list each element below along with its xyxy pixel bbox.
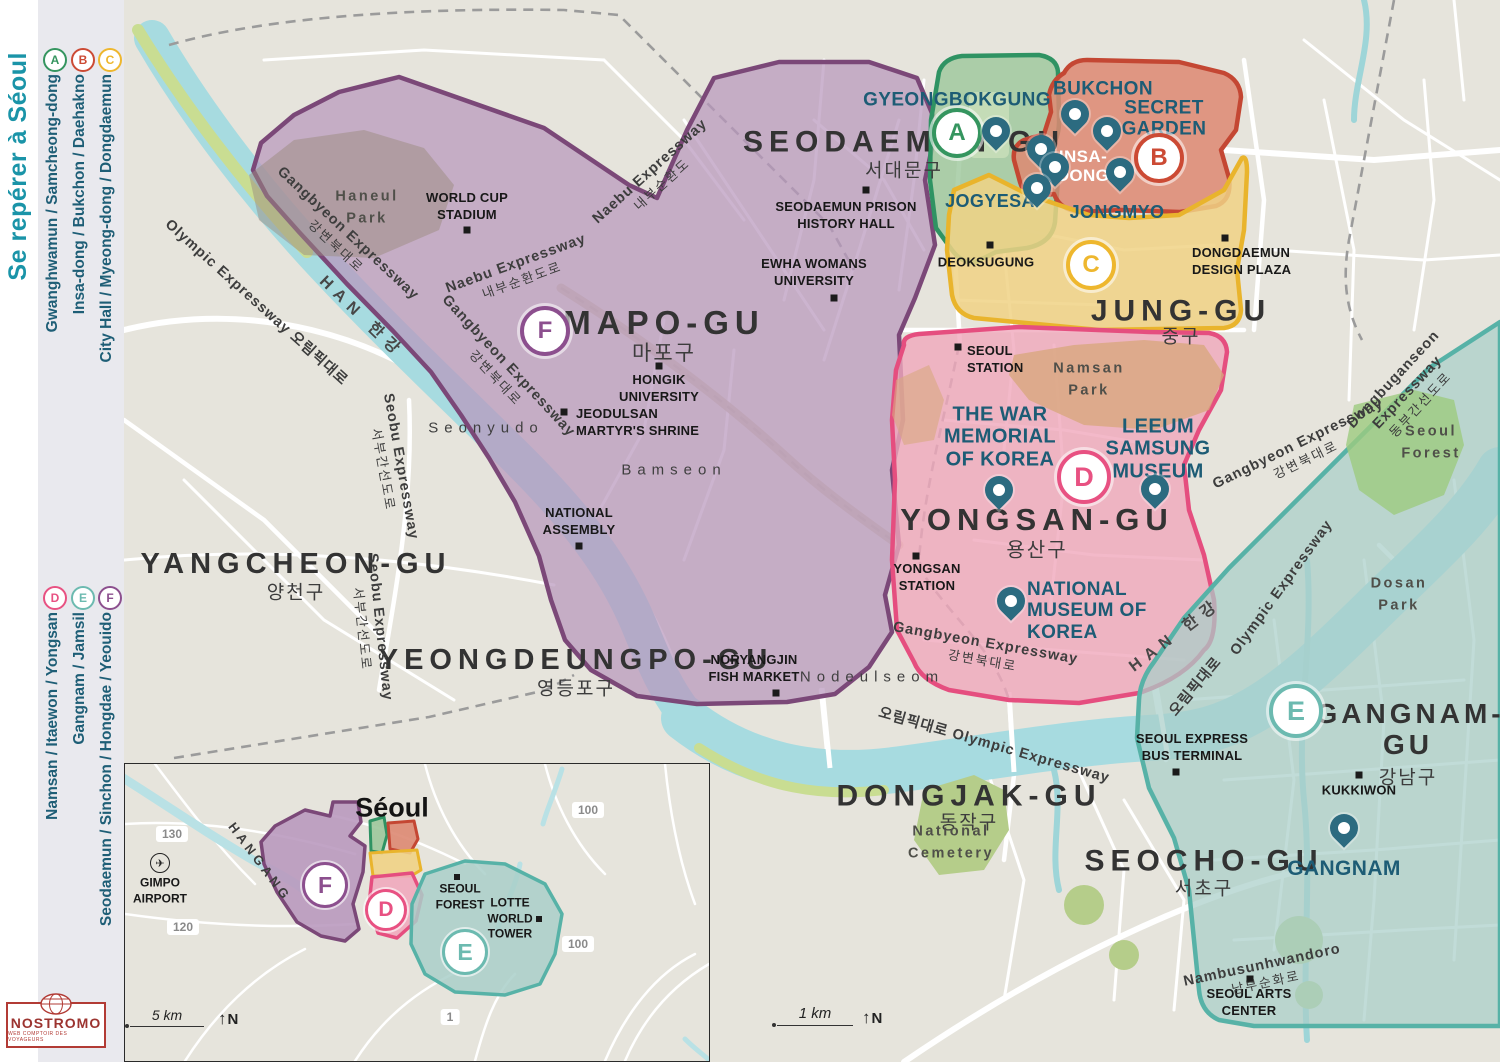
inset-zone-red <box>388 821 418 853</box>
poi-marker <box>656 363 663 370</box>
logo-tagline: WEB COMPTOIR DES VOYAGEURS <box>8 1031 104 1043</box>
attraction-label-bukchon: BUKCHON <box>1053 78 1153 99</box>
district-label-seodaemun-gu: SEODAEMUN-GU <box>743 126 1065 159</box>
globe-icon <box>39 992 73 1021</box>
poi-marker <box>913 553 920 560</box>
legend-badge-f: F <box>98 586 122 610</box>
main-map: SEODAEMUN-GU 서대문구 MAPO-GU 마포구 YANGCHEON-… <box>124 0 1500 1062</box>
island-label-bamseon: Bamseon <box>621 462 726 479</box>
poi-express-bus-terminal: SEOUL EXPRESS BUS TERMINAL <box>1125 731 1260 765</box>
legend-item-d: Namsan / Itaewon / Yongsan <box>44 612 62 820</box>
road-number-100-top: 100 <box>572 802 604 818</box>
inset-badge-e: E <box>442 929 488 975</box>
park-label-dosan: Dosan Park <box>1359 573 1439 617</box>
district-korean-yangcheon-gu: 양천구 <box>267 578 325 605</box>
poi-marker <box>454 874 460 880</box>
poi-kukkiwon: KUKKIWON <box>1322 783 1397 800</box>
main-scale-bar: 1 km <box>777 1005 853 1026</box>
legend-badge-c: C <box>98 48 122 72</box>
zone-badge-a: A <box>932 108 982 158</box>
main-north-arrow: N <box>862 1008 882 1028</box>
inset-title: Séoul <box>355 793 429 824</box>
poi-marker <box>987 242 994 249</box>
inset-badge-f: F <box>302 862 348 908</box>
poi-marker <box>1222 235 1229 242</box>
legend-item-c: City Hall / Myeong-dong / Dongdaemun <box>98 74 116 362</box>
inset-lotte-world-tower: LOTTE WORLD TOWER <box>481 896 539 943</box>
poi-marker <box>863 187 870 194</box>
poi-marker <box>464 227 471 234</box>
zone-badge-b: B <box>1134 133 1184 183</box>
airplane-icon: ✈ <box>150 853 170 873</box>
poi-marker <box>773 690 780 697</box>
legend-item-b: Insa-dong / Bukchon / Daehakno <box>71 74 89 314</box>
legend-badge-d: D <box>43 586 67 610</box>
seoul-map-page: Se repérer à Séoul A B C Gwanghwamun / S… <box>0 0 1500 1062</box>
district-korean-yongsan-gu: 용산구 <box>1006 534 1067 563</box>
poi-marker <box>576 543 583 550</box>
district-label-yangcheon-gu: YANGCHEON-GU <box>140 549 451 581</box>
poi-yongsan-station: YONGSAN STATION <box>887 561 967 595</box>
legend-item-a: Gwanghwamun / Samcheong-dong <box>44 74 62 332</box>
poi-marker <box>1173 769 1180 776</box>
nostromo-logo: NOSTROMO WEB COMPTOIR DES VOYAGEURS <box>6 1002 106 1048</box>
inset-north-arrow: N <box>218 1009 238 1029</box>
poi-deoksugung: DEOKSUGUNG <box>938 255 1035 272</box>
poi-marker <box>1356 772 1363 779</box>
poi-national-assembly: NATIONAL ASSEMBLY <box>529 505 629 539</box>
attraction-label-jogyesa: JOGYESA <box>945 191 1035 211</box>
district-label-mapo-gu: MAPO-GU <box>563 305 765 341</box>
legend-item-f: Seodaemun / Sinchon / Hongdae / Yeouido <box>98 612 116 926</box>
legend-badge-a: A <box>43 48 67 72</box>
district-label-yongsan-gu: YONGSAN-GU <box>900 503 1174 537</box>
poi-marker <box>955 344 962 351</box>
poi-world-cup-stadium: WORLD CUP STADIUM <box>412 190 522 224</box>
inset-gimpo-airport: GIMPO AIRPORT <box>125 875 195 906</box>
zone-badge-d: D <box>1057 450 1111 504</box>
park-label-national-cemetery: National Cemetery <box>896 821 1006 865</box>
legend-sidebar: Se repérer à Séoul A B C Gwanghwamun / S… <box>0 0 124 1062</box>
legend-item-e: Gangnam / Jamsil <box>71 612 89 745</box>
district-korean-seocho-gu: 서초구 <box>1175 874 1233 901</box>
road-number-130: 130 <box>156 826 188 842</box>
district-korean-seodaemun-gu: 서대문구 <box>865 156 943 183</box>
inset-scale-bar: 5 km <box>130 1007 204 1027</box>
poi-dongdaemun-plaza: DONGDAEMUN DESIGN PLAZA <box>1192 245 1312 279</box>
district-korean-jung-gu: 중구 <box>1162 322 1201 349</box>
district-label-gangnam-gu: GANGNAM-GU <box>1316 699 1500 761</box>
overview-inset-map: Séoul HANGANG ✈ GIMPO AIRPORT 130 120 10… <box>124 763 710 1062</box>
poi-seodaemun-prison: SEODAEMUN PRISON HISTORY HALL <box>766 199 926 233</box>
attraction-label-jongmyo: JONGMYO <box>1070 202 1165 222</box>
legend-badge-b: B <box>71 48 95 72</box>
poi-marker <box>831 295 838 302</box>
legend-badge-e: E <box>71 586 95 610</box>
poi-marker <box>536 916 542 922</box>
poi-noryangjin-market: NORYANGJIN FISH MARKET <box>694 652 814 686</box>
poi-seoul-station: SEOUL STATION <box>967 343 1037 377</box>
page-title: Se repérer à Séoul <box>4 52 33 281</box>
inset-badge-d: D <box>365 889 407 931</box>
zone-badge-c: C <box>1066 240 1116 290</box>
island-label-nodeulseom: Nodeulseom <box>800 669 944 686</box>
poi-jeodulsan-shrine: JEODULSAN MARTYR'S SHRINE <box>576 406 714 440</box>
road-number-1: 1 <box>441 1009 460 1025</box>
zone-badge-f: F <box>520 306 570 356</box>
district-korean-yeongdeungpo-gu: 영등포구 <box>537 674 615 701</box>
road-number-120: 120 <box>167 919 199 935</box>
district-korean-mapo-gu: 마포구 <box>632 337 696 367</box>
road-number-100-right: 100 <box>562 936 594 952</box>
attraction-label-war-memorial: THE WAR MEMORIAL OF KOREA <box>939 403 1061 470</box>
poi-hongik-university: HONGIK UNIVERSITY <box>604 372 714 406</box>
zone-badge-e: E <box>1269 684 1323 738</box>
poi-ewha-university: EWHA WOMANS UNIVERSITY <box>749 256 879 290</box>
attraction-label-gangnam: GANGNAM <box>1287 857 1401 881</box>
park-label-namsan: Namsan Park <box>1044 358 1134 402</box>
